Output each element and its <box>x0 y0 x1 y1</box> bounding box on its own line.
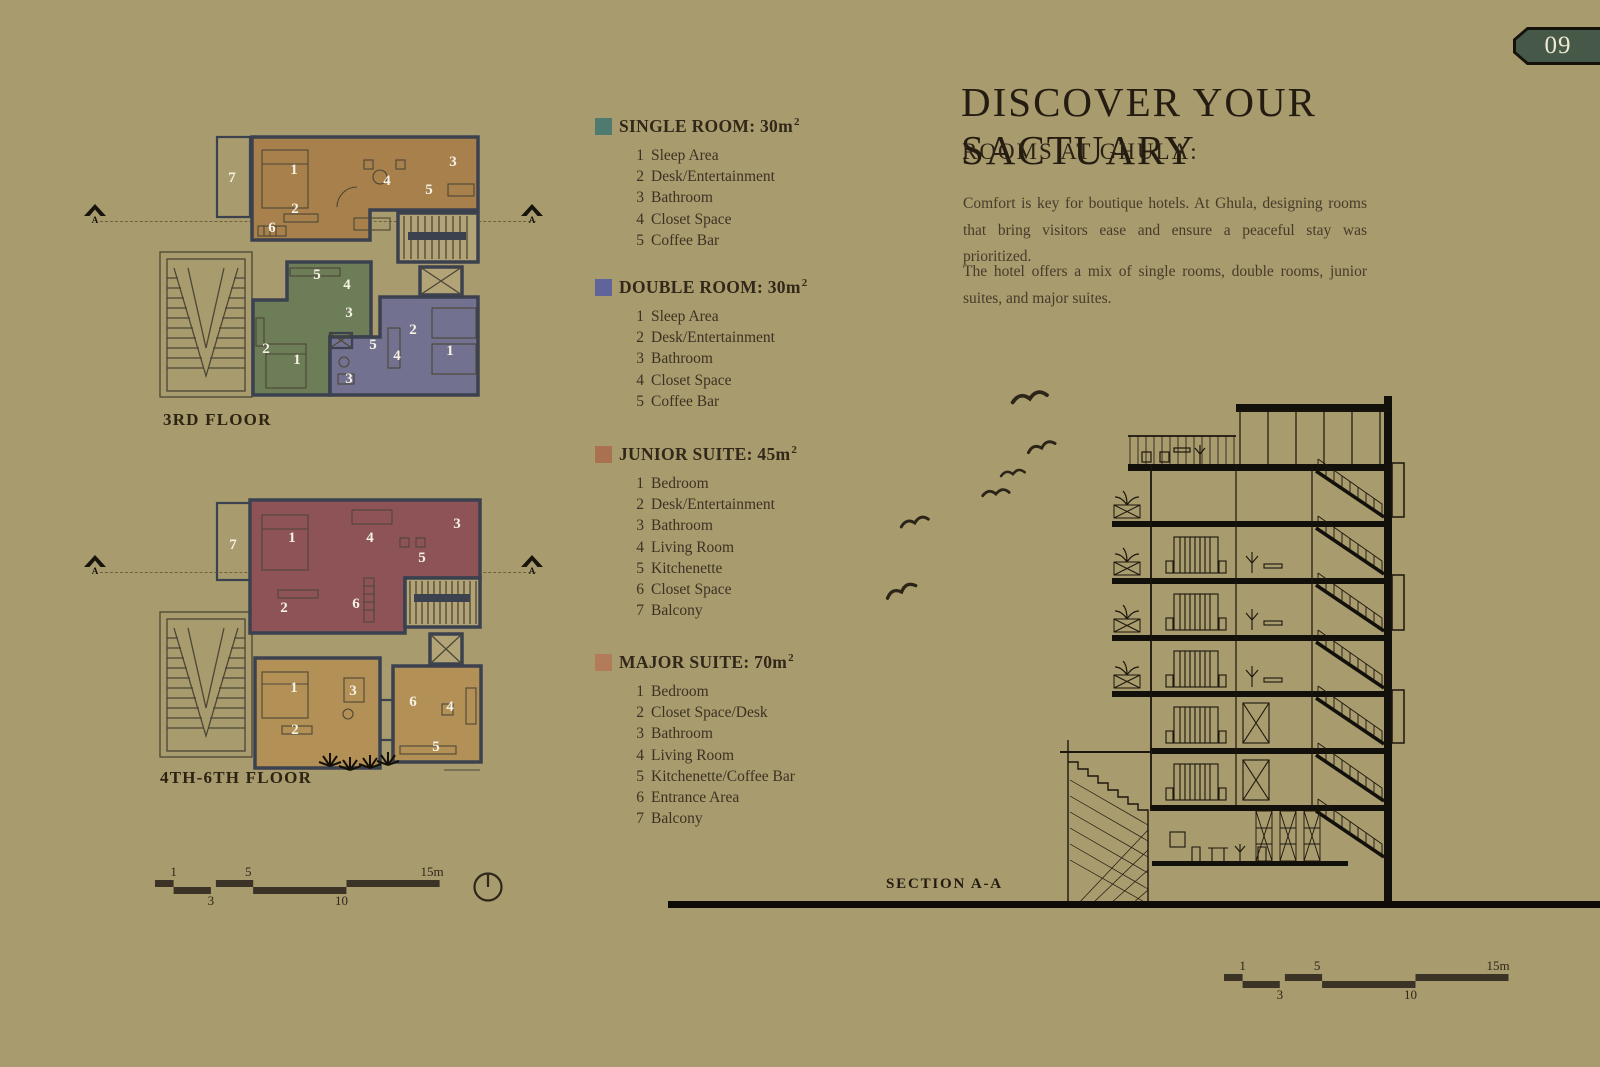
svg-text:3: 3 <box>208 893 215 908</box>
svg-text:5: 5 <box>313 267 321 283</box>
section-label: SECTION A-A <box>886 876 1003 893</box>
bird-icon <box>1001 470 1025 477</box>
building-section <box>1040 380 1540 910</box>
svg-text:5: 5 <box>418 550 426 566</box>
ground-line <box>668 901 1600 908</box>
svg-text:2: 2 <box>409 322 417 338</box>
elevator <box>420 267 462 295</box>
svg-text:2: 2 <box>291 201 299 217</box>
bird-icon <box>900 516 928 527</box>
legend-single-room-header: SINGLE ROOM: 30m2 <box>595 116 915 137</box>
guest-rooms <box>1166 537 1282 800</box>
legend-item: 5Kitchenette/Coffee Bar <box>633 766 915 787</box>
bird-icon <box>982 489 1009 495</box>
legend-item: 2Desk/Entertainment <box>633 166 915 187</box>
page-number: 09 <box>1545 32 1572 60</box>
svg-text:15m: 15m <box>1486 958 1509 973</box>
legend-item: 2Closet Space/Desk <box>633 702 915 723</box>
svg-text:3: 3 <box>345 371 353 387</box>
room-major-suite-left <box>255 658 380 768</box>
stair-core <box>405 578 480 627</box>
legend-single-room: SINGLE ROOM: 30m2 1Sleep Area 2Desk/Ente… <box>595 116 915 251</box>
legend-item: 3Bathroom <box>633 348 915 369</box>
major-suite-swatch-icon <box>595 654 612 671</box>
stairwell <box>160 252 252 397</box>
svg-text:3: 3 <box>345 305 353 321</box>
svg-text:1: 1 <box>170 864 177 879</box>
legend-item: 5Coffee Bar <box>633 230 915 251</box>
portfolio-page: 09 DISCOVER YOUR SACTUARY ROOMS AT GHULA… <box>0 0 1600 1067</box>
legend-item: 6Entrance Area <box>633 787 915 808</box>
svg-text:4: 4 <box>343 277 351 293</box>
single-room-swatch-icon <box>595 118 612 135</box>
legend-item: 7Balcony <box>633 808 915 829</box>
svg-text:2: 2 <box>291 722 299 738</box>
svg-text:4: 4 <box>383 173 391 189</box>
svg-text:6: 6 <box>352 596 360 612</box>
svg-text:10: 10 <box>1404 987 1417 1002</box>
svg-text:10: 10 <box>335 893 348 908</box>
svg-text:3: 3 <box>453 516 461 532</box>
double-room-swatch-icon <box>595 279 612 296</box>
svg-text:15m: 15m <box>420 864 443 879</box>
stairwell <box>160 612 252 757</box>
section-cut-marker: A <box>82 201 108 225</box>
svg-text:1: 1 <box>290 680 298 696</box>
scale-bar: 1 5 15m 3 10 <box>1218 956 1518 1006</box>
svg-text:1: 1 <box>290 162 298 178</box>
svg-text:6: 6 <box>409 694 417 710</box>
svg-text:A: A <box>92 215 99 225</box>
svg-text:3: 3 <box>1277 987 1284 1002</box>
legend-item: 1Sleep Area <box>633 145 915 166</box>
svg-text:3: 3 <box>349 683 357 699</box>
section-cut-marker: A <box>82 552 108 576</box>
entrance-stair <box>1060 740 1152 904</box>
svg-text:4: 4 <box>393 348 401 364</box>
floor-plan-4th-6th: 7 1 4 3 5 2 6 1 3 2 6 4 5 <box>148 482 548 782</box>
svg-text:7: 7 <box>229 537 237 553</box>
floor-label-3rd: 3RD FLOOR <box>163 410 272 430</box>
junior-suite-swatch-icon <box>595 446 612 463</box>
room-major-suite-link <box>380 700 393 740</box>
elevator <box>430 634 462 664</box>
legend-major-suite-header: MAJOR SUITE: 70m2 <box>595 652 915 673</box>
svg-text:2: 2 <box>262 341 270 357</box>
legend-item: 4Closet Space <box>633 209 915 230</box>
legend-item: 1Sleep Area <box>633 306 915 327</box>
intro-paragraph-2: The hotel offers a mix of single rooms, … <box>963 259 1367 312</box>
svg-text:7: 7 <box>228 170 236 186</box>
svg-text:4: 4 <box>366 530 374 546</box>
svg-text:1: 1 <box>288 530 296 546</box>
svg-text:1: 1 <box>446 343 454 359</box>
svg-text:5: 5 <box>432 739 440 755</box>
legend-item: 3Bathroom <box>633 723 915 744</box>
page-number-badge: 09 <box>1513 27 1600 65</box>
svg-text:2: 2 <box>280 600 288 616</box>
legend-item: 4Living Room <box>633 745 915 766</box>
legend-double-room-header: DOUBLE ROOM: 30m2 <box>595 277 915 298</box>
svg-text:A: A <box>92 566 99 576</box>
svg-text:4: 4 <box>446 699 454 715</box>
legend-major-suite: MAJOR SUITE: 70m2 1Bedroom 2Closet Space… <box>595 652 915 829</box>
svg-text:5: 5 <box>369 337 377 353</box>
legend-item: 1Bedroom <box>633 681 915 702</box>
bird-icon <box>886 582 917 598</box>
svg-text:5: 5 <box>1314 958 1321 973</box>
scale-bar: 1 5 15m 3 10 <box>150 862 510 908</box>
svg-text:6: 6 <box>268 220 276 236</box>
svg-text:5: 5 <box>245 864 252 879</box>
svg-text:1: 1 <box>293 352 301 368</box>
floor-plan-3rd: 7 1 2 6 4 5 3 5 4 3 2 1 2 5 4 1 3 <box>148 122 548 412</box>
north-indicator-icon <box>475 874 502 901</box>
balconies <box>1114 491 1140 688</box>
stair-core <box>398 213 478 262</box>
legend-item: 3Bathroom <box>633 187 915 208</box>
ground-floor <box>1170 811 1320 861</box>
floor-label-4th-6th: 4TH-6TH FLOOR <box>160 768 312 788</box>
page-subtitle: ROOMS AT GHULA: <box>962 139 1199 165</box>
section-stairs <box>1316 459 1384 857</box>
svg-text:3: 3 <box>449 154 457 170</box>
svg-text:1: 1 <box>1239 958 1246 973</box>
legend-item: 2Desk/Entertainment <box>633 327 915 348</box>
svg-text:5: 5 <box>425 182 433 198</box>
